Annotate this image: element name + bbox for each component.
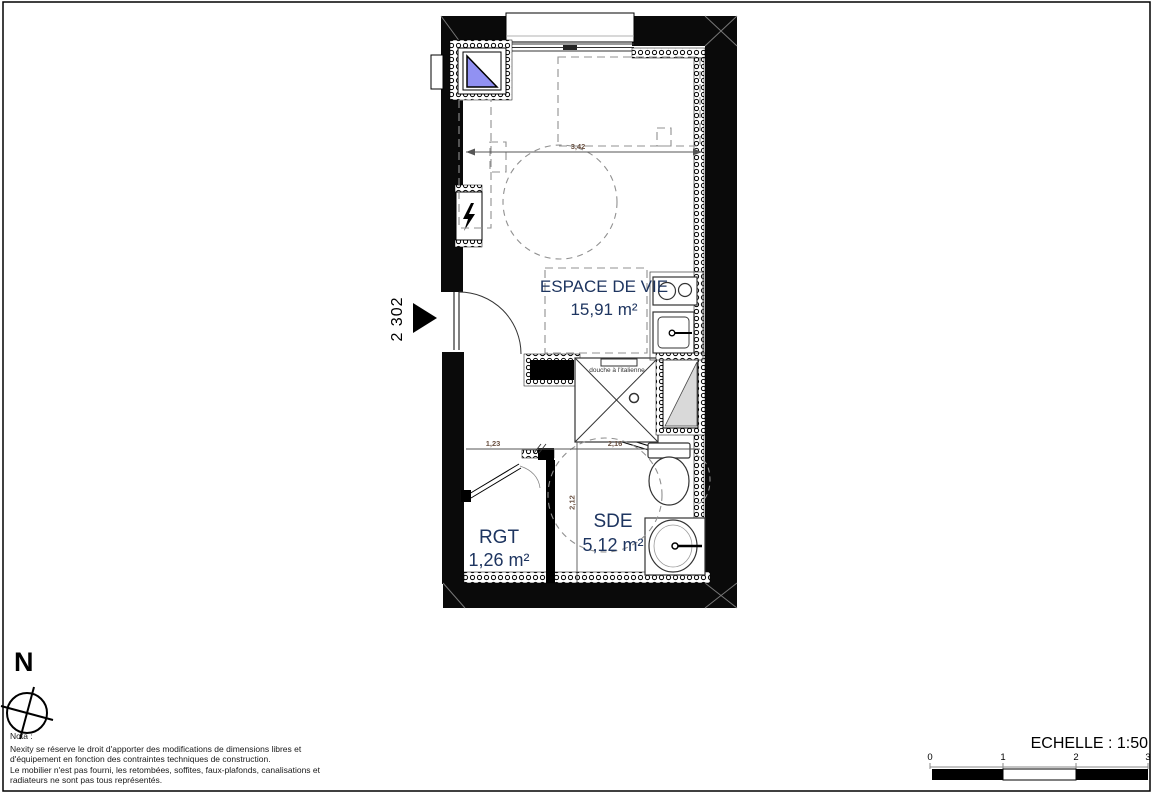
window	[504, 13, 634, 51]
nota-title: Nota :	[10, 731, 320, 742]
room-area-living: 15,91 m²	[504, 300, 704, 320]
dimension-sde-depth: 2,12	[568, 488, 577, 518]
floor-plan-drawing	[0, 0, 1154, 800]
unit-number: 2 302	[389, 289, 407, 349]
scale-tick-3: 3	[1138, 752, 1154, 763]
turning-circle-living	[503, 145, 617, 259]
room-label-storage: RGT	[449, 527, 549, 549]
dimension-living-width: 3,42	[558, 142, 598, 151]
entrance-arrow-icon	[413, 303, 437, 333]
room-label-living: ESPACE DE VIE	[504, 277, 704, 297]
room-label-sde: SDE	[563, 511, 663, 533]
scale-tick-1: 1	[993, 752, 1013, 763]
nota-line: Le mobilier n'est pas fourni, les retomb…	[10, 765, 320, 776]
scale-tick-2: 2	[1066, 752, 1086, 763]
technical-duct	[656, 353, 705, 435]
room-area-storage: 1,26 m²	[449, 550, 549, 571]
room-area-sde: 5,12 m²	[563, 535, 663, 556]
nota-line: radiateurs ne sont pas tous représentés.	[10, 775, 320, 786]
shower-drain-icon	[630, 394, 639, 403]
shower-label: douche à l'italienne	[577, 367, 657, 374]
scale-label: ECHELLE : 1:50	[938, 735, 1148, 753]
dimension-storage-width: 1,23	[478, 439, 508, 448]
north-label: N	[14, 647, 44, 678]
window-handle-icon	[563, 45, 577, 50]
faucet-icon	[672, 543, 678, 549]
electrical-panel	[456, 192, 482, 240]
nota-line: d'équipement en fonction des contraintes…	[10, 754, 320, 765]
scale-tick-0: 0	[920, 752, 940, 763]
roller-shutter-box	[450, 40, 512, 100]
floor-plan-page: ESPACE DE VIE 15,91 m² RGT 1,26 m² SDE 5…	[0, 0, 1154, 800]
scale-bar	[930, 763, 1148, 780]
bed-outline	[558, 57, 700, 146]
storage-door	[469, 464, 540, 498]
nota-line: Nexity se réserve le droit d'apporter de…	[10, 744, 320, 755]
wall-niche	[431, 55, 443, 89]
nota-block: Nota : Nexity se réserve le droit d'appo…	[10, 731, 320, 786]
dimension-sde-width: 2,16	[600, 439, 630, 448]
shower-bar-icon	[601, 359, 637, 366]
